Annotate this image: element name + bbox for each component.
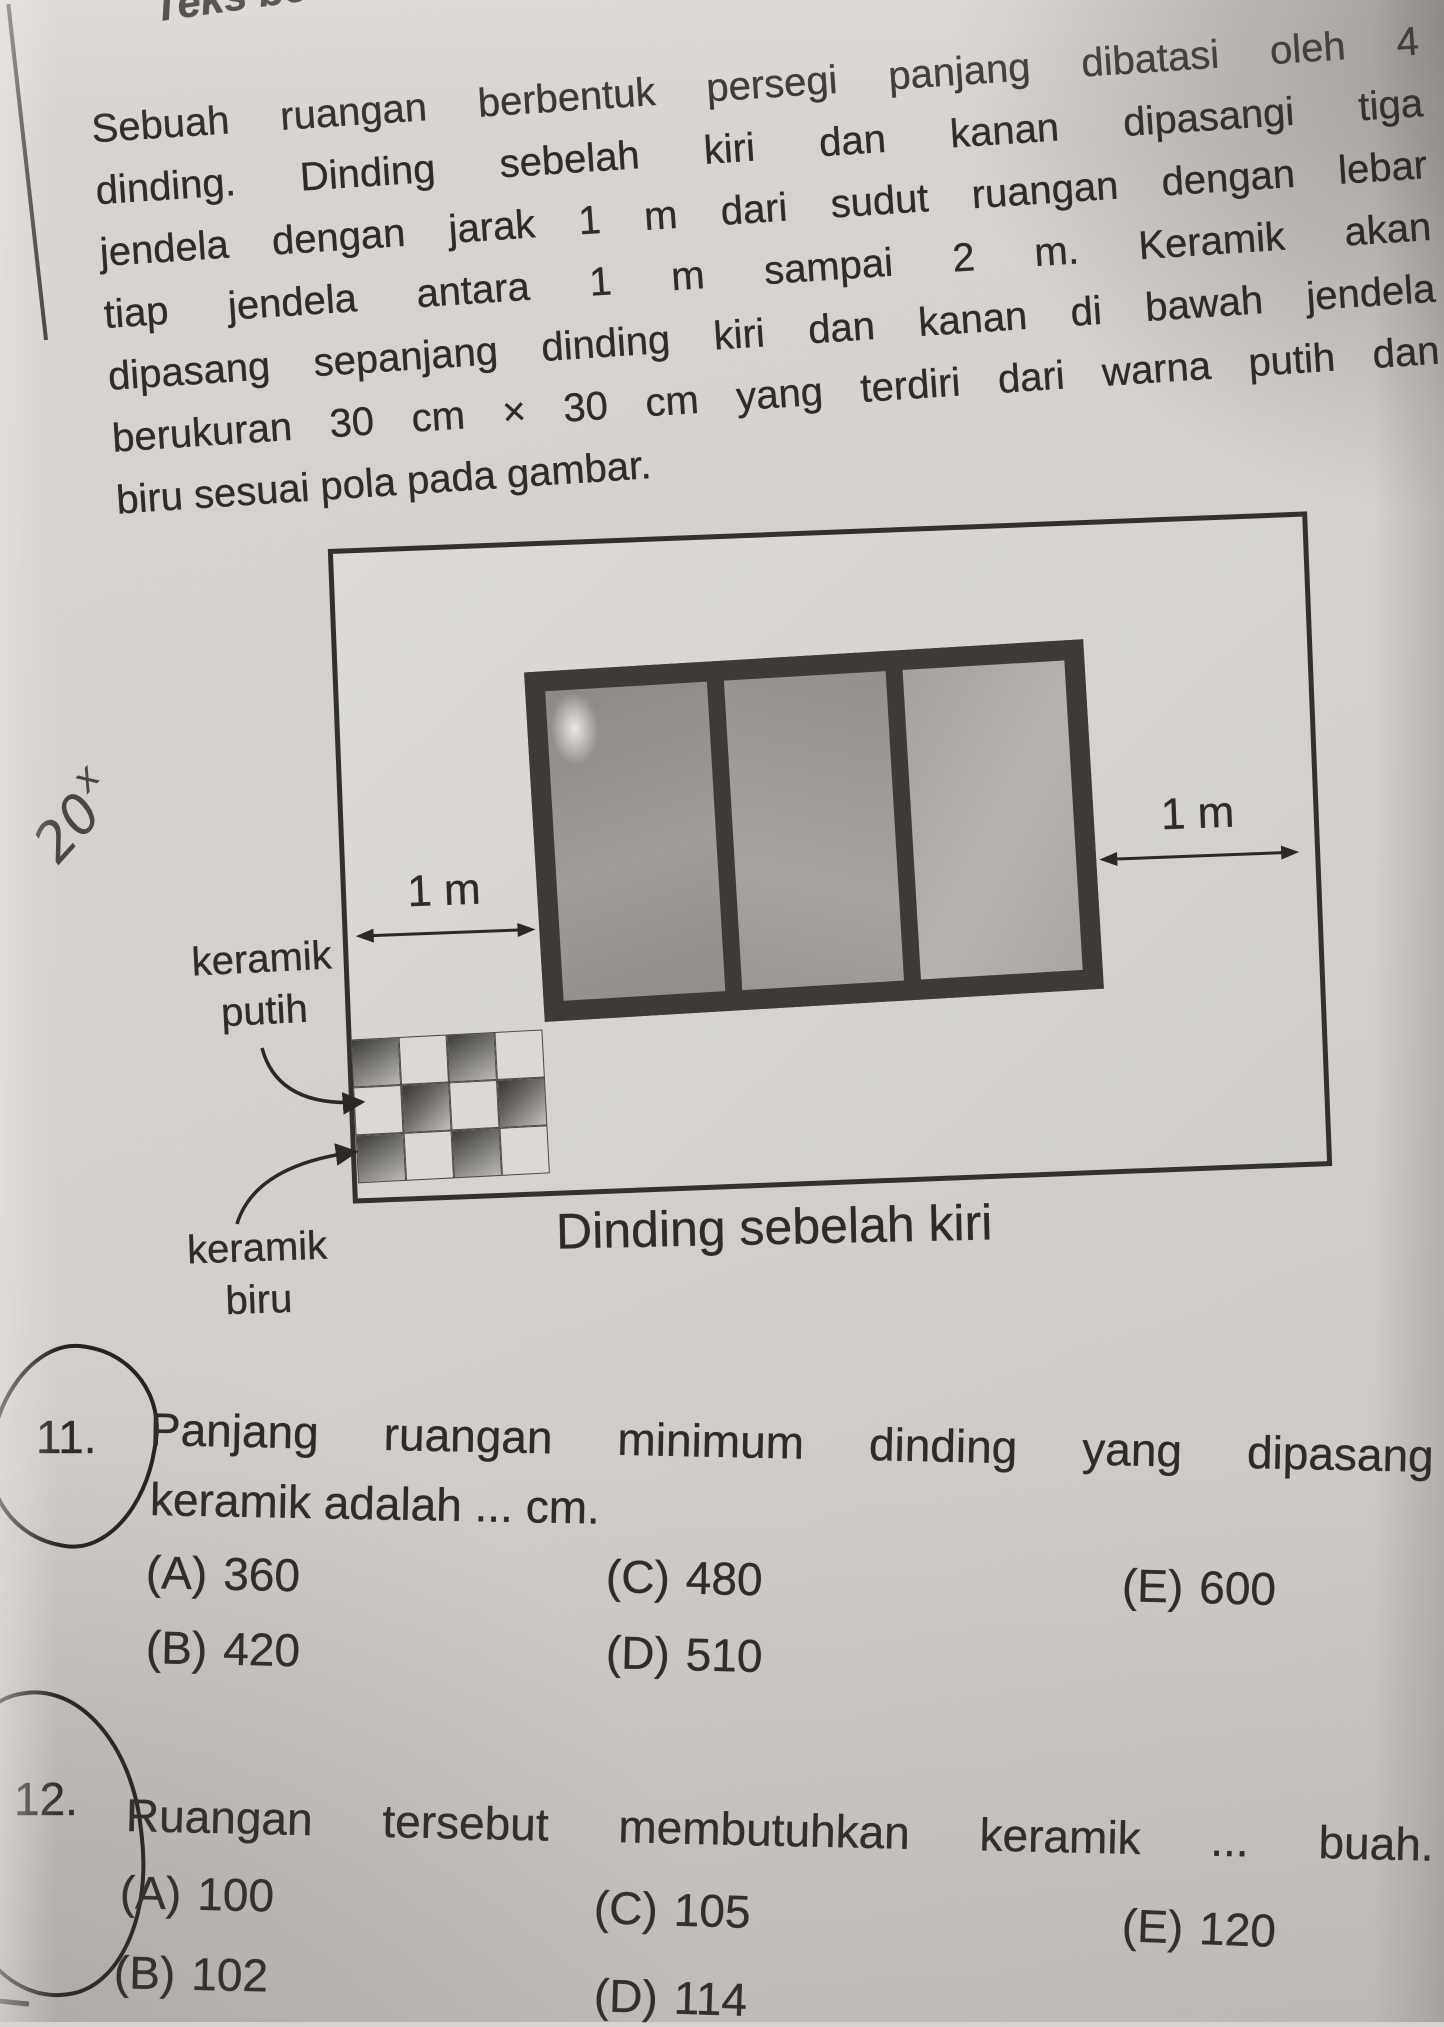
- label-arrow-icons: [150, 1020, 450, 1270]
- question-11-text-line2: keramik adalah ... cm.: [149, 1472, 600, 1535]
- q12-option-d: (D)114: [593, 1968, 748, 2027]
- white-tile: [494, 1030, 544, 1080]
- diagram-caption: Dinding sebelah kiri: [555, 1193, 992, 1260]
- right-gap-dimension: 1 m: [1097, 785, 1300, 869]
- right-gap-label: 1 m: [1097, 785, 1299, 843]
- left-gap-label: 1 m: [353, 862, 535, 919]
- q11-option-d: (D)510: [605, 1625, 763, 1683]
- q12-option-e: (E)120: [1121, 1898, 1277, 1958]
- double-arrow-icon: [355, 920, 536, 945]
- q12-option-c: (C)105: [593, 1880, 751, 1939]
- problem-paragraph: Sebuah ruangan berbentuk persegi panjang…: [90, 10, 1444, 531]
- blue-tile: [446, 1032, 496, 1082]
- window-pane: [545, 682, 725, 1001]
- wall-diagram: 1 m 1 m: [328, 511, 1332, 1203]
- q11-option-b: (B)420: [145, 1620, 300, 1677]
- question-12-text-line1: Ruangan tersebut membutuhkan keramik ...…: [125, 1788, 1434, 1872]
- white-tile: [449, 1080, 499, 1130]
- q11-option-a: (A)360: [145, 1545, 300, 1602]
- handwritten-note: 20x: [15, 757, 131, 874]
- q11-option-c: (C)480: [605, 1549, 763, 1606]
- double-arrow-icon: [1099, 843, 1300, 869]
- white-tile: [499, 1125, 549, 1175]
- window-pane: [903, 660, 1083, 979]
- q12-option-b: (B)102: [113, 1945, 268, 2002]
- left-gap-dimension: 1 m: [353, 862, 536, 945]
- blue-tile-arrow-icon: [237, 1152, 355, 1224]
- blue-tile: [497, 1077, 547, 1127]
- question-11-text-line1: Panjang ruangan minimum dinding yang dip…: [149, 1402, 1434, 1483]
- blue-tile: [452, 1128, 502, 1178]
- question-11-number: 11.: [36, 1410, 97, 1464]
- page-margin-rule: [6, 4, 48, 340]
- question-12-number: 12.: [14, 1772, 78, 1826]
- section-heading: Teks berikut: [150, 0, 400, 32]
- page-edge-mark: [0, 1998, 29, 2006]
- white-tile-arrow-icon: [262, 1048, 362, 1103]
- window-pane: [724, 671, 904, 990]
- window: [524, 639, 1104, 1022]
- q11-option-e: (E)600: [1121, 1558, 1276, 1616]
- q12-option-a: (A)100: [119, 1865, 274, 1922]
